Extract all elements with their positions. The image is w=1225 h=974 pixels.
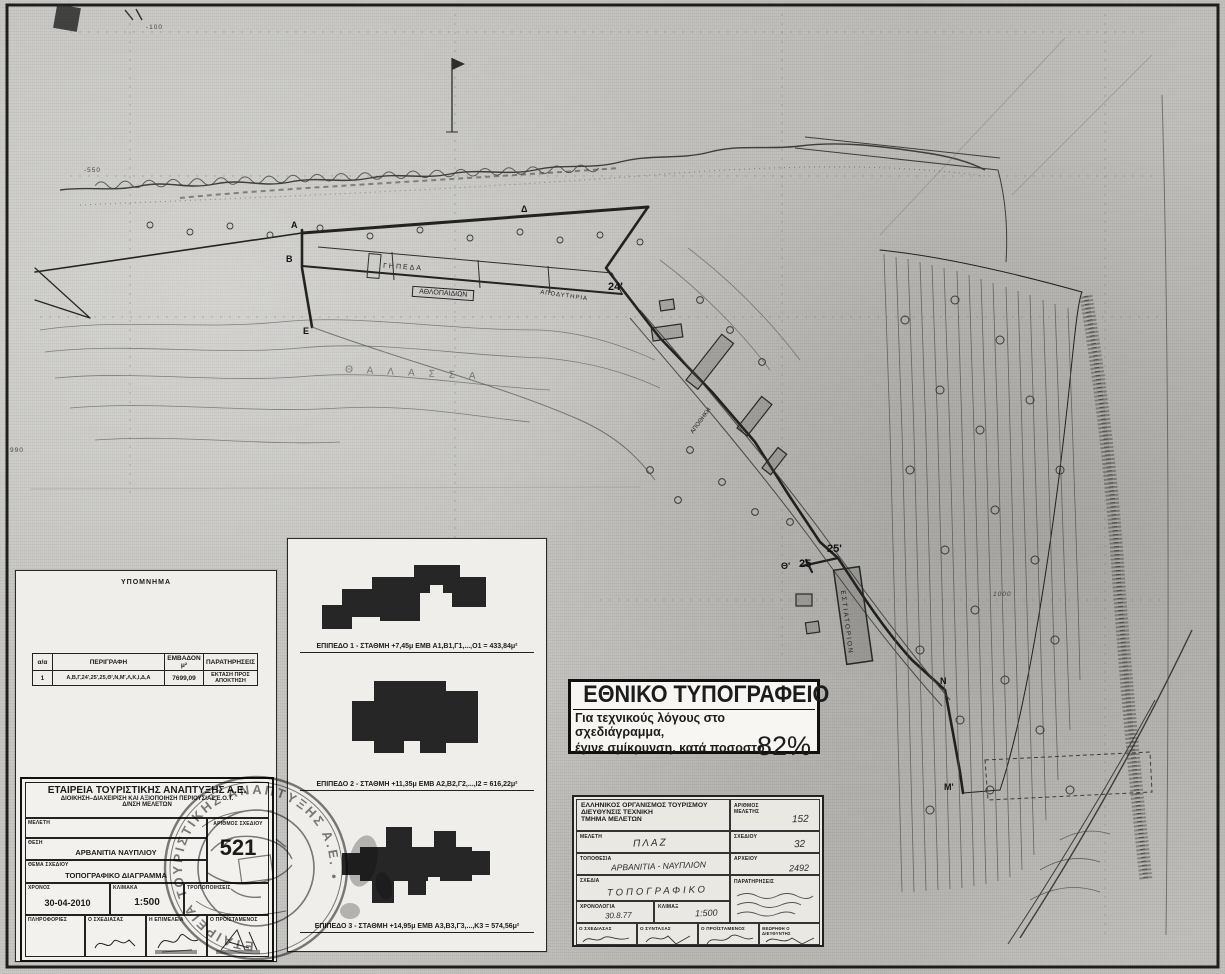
level1-caption: ΕΠΙΠΕΔΟ 1 - ΣΤΑΘΜΗ +7,45μ ΕΜΒ Α1,Β1,Γ1,.… (300, 643, 534, 653)
handwriting-squiggle (733, 888, 817, 922)
vertex-Mp: Μ' (944, 782, 954, 792)
vertex-Thp: Θ' (781, 561, 790, 571)
printing-office-percent: 82% (757, 731, 811, 762)
scanned-map-sheet: ΓΗΠΕΔΑ ΑΘΛΟΠΑΙΔΙΩΝ ΑΠΟΔΥΤΗΡΙΑ ΑΠΟΘΗΚΗ ΕΣ… (0, 0, 1225, 974)
tb2010-date: ΧΡΟΝΟΣ 30-04-2010 (25, 883, 110, 915)
eot-study-number: ΑΡΙΘΜΟΣ ΜΕΛΕΤΗΣ 152 (730, 799, 820, 831)
eot-sxediou: ΣΧΕΔΙΟΥ 32 (730, 831, 820, 853)
svg-text:ΕΤΑΙΡΕΙΑ ΤΟΥΡΙΣΤΙΚΗΣ ΑΝΑΠΤΥΞΗΣ: ΕΤΑΙΡΕΙΑ ΤΟΥΡΙΣΤΙΚΗΣ ΑΝΑΠΤΥΞΗΣ Α.Ε. • (170, 782, 342, 954)
grid-label-550: -550 (84, 167, 101, 174)
vertex-D: Δ (521, 204, 527, 214)
vertex-N: Ν (940, 676, 947, 686)
eot-drafter: Ο ΣΧΕΔΙΑΣΑΣ (576, 923, 637, 945)
company-round-stamp: ΕΤΑΙΡΕΙΑ ΤΟΥΡΙΣΤΙΚΗΣ ΑΝΑΠΤΥΞΗΣ Α.Ε. • (136, 761, 406, 974)
vertex-25: 25 (799, 558, 811, 570)
legend-cell-notes: ΕΚΤΑΣΗ ΠΡΟΣ ΑΠΟΚΤΗΣΗ (203, 671, 257, 686)
eot-topothesia: ΤΟΠΟΘΕΣΙΑ ΑΡΒΑΝΙΤΙΑ - ΝΑΥΠΛΙΟΝ (576, 853, 730, 875)
signature-squiggle (640, 932, 696, 946)
legend-col-notes: ΠΑΡΑΤΗΡΗΣΕΙΣ (203, 654, 257, 671)
printing-office-title: ΕΘΝΙΚΟ ΤΥΠΟΓΡΑΦΕΙΟ (583, 681, 804, 709)
vertex-A: Α (291, 220, 298, 230)
legend-title: ΥΠΟΜΝΗΜΑ (16, 579, 276, 586)
stamp-text: ΕΤΑΙΡΕΙΑ ΤΟΥΡΙΣΤΙΚΗΣ ΑΝΑΠΤΥΞΗΣ Α.Ε. • (170, 782, 342, 954)
legend-cell-aa: 1 (33, 671, 53, 686)
level1-floorplan (314, 555, 524, 637)
vertex-B: Β (286, 254, 293, 264)
grid-label-100: -100 (146, 24, 163, 31)
eot-meleti: ΜΕΛΕΤΗ ΠΛΑΖ (576, 831, 730, 853)
vertex-25p: 25' (827, 543, 842, 555)
eot-date: ΧΡΟΝΟΛΟΓΙΑ 30.8.77 (576, 901, 654, 923)
grid-label-990: 990 (10, 447, 24, 454)
eot-org: ΕΛΛΗΝΙΚΟΣ ΟΡΓΑΝΙΣΜΟΣ ΤΟΥΡΙΣΜΟΥ ΔΙΕΥΘΥΝΣΙ… (576, 799, 730, 831)
legend-cell-descr: Α,Β,Γ,24',25',25,Θ',Ν,Μ',Λ,Κ,Ι,Δ,Α (52, 671, 164, 686)
grid-label-1000: 1000 (993, 591, 1011, 598)
level2-floorplan (346, 673, 486, 769)
eot-approved: ΘΕΩΡΗΘΗ Ο ΔΙΕΥΘΥΝΤΗΣ (759, 923, 820, 945)
legend-col-aa: α/α (33, 654, 53, 671)
legend-row: 1 Α,Β,Γ,24',25',25,Θ',Ν,Μ',Λ,Κ,Ι,Δ,Α 769… (33, 671, 258, 686)
signature-squiggle (701, 932, 757, 946)
eot-head: Ο ΠΡΟΪΣΤΑΜΕΝΟΣ (698, 923, 759, 945)
signature-squiggle (579, 932, 635, 946)
legend-col-descr: ΠΕΡΙΓΡΑΦΗ (52, 654, 164, 671)
eot-remarks: ΠΑΡΑΤΗΡΗΣΕΙΣ (730, 875, 820, 923)
printing-office-box: ΕΘΝΙΚΟ ΤΥΠΟΓΡΑΦΕΙΟ Για τεχνικούς λόγους … (568, 679, 820, 754)
eot-arxeiou: ΑΡΧΕΙΟΥ 2492 (730, 853, 820, 875)
legend-cell-area: 7699,09 (165, 671, 204, 686)
legend-table: α/α ΠΕΡΙΓΡΑΦΗ ΕΜΒΑΔΟΝ μ² ΠΑΡΑΤΗΡΗΣΕΙΣ 1 … (32, 653, 258, 686)
eot-compiler: Ο ΣΥΝΤΑΞΑΣ (637, 923, 698, 945)
vertex-E: Ε (303, 326, 309, 336)
signature-squiggle (762, 934, 818, 946)
title-block-eot: ΕΛΛΗΝΙΚΟΣ ΟΡΓΑΝΙΣΜΟΣ ΤΟΥΡΙΣΜΟΥ ΔΙΕΥΘΥΝΣΙ… (572, 795, 824, 947)
legend-col-area: ΕΜΒΑΔΟΝ μ² (165, 654, 204, 671)
printing-office-line2: έγινε σμίκρυνση, κατά ποσοστό (571, 741, 769, 755)
eot-sxedia: ΣΧΕΔΙΑ ΤΟΠΟΓΡΑΦΙΚΟ (576, 875, 730, 901)
tb2010-info: ΠΛΗΡΟΦΟΡΙΕΣ (25, 915, 85, 957)
vertex-24: 24' (608, 281, 623, 293)
eot-scale: ΚΛΙΜΑΞ 1:500 (654, 901, 730, 923)
